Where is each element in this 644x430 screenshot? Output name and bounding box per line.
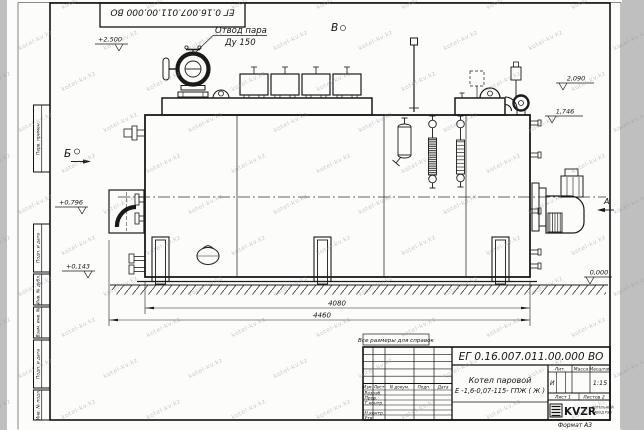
level-0000-label: 0,000 xyxy=(590,269,609,277)
level-1746-label: 1,746 xyxy=(556,108,575,116)
level-2090-label: 2,090 xyxy=(567,75,586,83)
manhole xyxy=(197,246,219,265)
format-label: Формат А3 xyxy=(558,422,592,429)
company-logo: KVZR КОТЕЛЬНЫЙ ЗАВОД РЭП xyxy=(550,404,614,418)
steam-dome xyxy=(455,62,529,115)
tb-col-data: Дата xyxy=(437,385,449,390)
level-gauge-1 xyxy=(429,116,437,188)
tb-row-tkontr: Т.контр. xyxy=(365,400,384,406)
stub-pipe xyxy=(409,38,419,112)
steam-outlet-label-1: Отвод пара xyxy=(215,26,267,36)
tb-row-utv: Утв. xyxy=(365,415,374,421)
margin-label: Подп. и дата xyxy=(36,233,42,263)
dim-4080-label: 4080 xyxy=(328,300,346,308)
view-a-label: А xyxy=(603,197,609,206)
burner xyxy=(532,169,584,233)
dim-4460-label: 4460 xyxy=(313,312,331,320)
drawing-canvas: ЕГ 0.16.007.011.00.000 ВО Перв. примен. … xyxy=(0,0,644,430)
title-block: ЕГ 0.16.007.011.00.000 ВО Котел паровой … xyxy=(363,347,614,421)
drawing-sheet: ЕГ 0.16.007.011.00.000 ВО Перв. примен. … xyxy=(0,0,644,430)
tb-lit-value: И xyxy=(550,380,555,387)
dome-lug xyxy=(213,90,229,98)
tb-col-list: Лист xyxy=(373,385,385,390)
view-v-label: В xyxy=(331,22,338,34)
note-text: Все размеры для справок xyxy=(358,338,435,344)
level-2500-label: +2,500 xyxy=(98,36,122,44)
margin-stamp-labels: Перв. примен. Подп. и дата Инв. № дубл. … xyxy=(36,122,42,420)
margin-label: Подп. и дата xyxy=(36,349,42,379)
corner-doc-number: ЕГ 0.16.007.011.00.000 ВО xyxy=(110,7,234,17)
steam-valve xyxy=(163,46,209,97)
front-vessel xyxy=(393,118,412,166)
tb-col-ndokum: N докум. xyxy=(390,385,409,390)
company-name-2: ЗАВОД РЭП xyxy=(592,411,612,415)
top-platform xyxy=(162,98,372,115)
level-0143-label: +0,143 xyxy=(66,263,90,271)
margin-label: Инв. № подл. xyxy=(36,390,42,420)
level-0796-label: +0,796 xyxy=(59,199,83,207)
tb-col-podp: Подп. xyxy=(418,385,431,390)
margin-label: Взам. инв. № xyxy=(36,307,42,337)
margin-label: Перв. примен. xyxy=(36,122,42,155)
steam-outlet-callout: Отвод пара Ду 150 xyxy=(196,26,267,52)
tb-scale-header: Масштаб xyxy=(589,367,611,373)
tb-lit-header: Лит. xyxy=(554,367,566,373)
tb-mass-header: Масса xyxy=(574,367,589,373)
company-name-1: КОТЕЛЬНЫЙ xyxy=(592,405,614,410)
steam-outlet-label-2: Ду 150 xyxy=(224,38,256,48)
tb-sheets-info: Листов 2 xyxy=(582,395,605,401)
view-b-label: Б xyxy=(64,148,71,160)
note-box: Все размеры для справок xyxy=(358,334,435,345)
safety-boxes xyxy=(240,67,361,98)
ground xyxy=(110,285,608,295)
tb-sheet-info: Лист 1 xyxy=(554,395,571,401)
margin-label: Инв. № дубл. xyxy=(36,274,42,304)
tb-product-name: Котел паровой xyxy=(469,376,532,385)
left-fittings xyxy=(124,126,145,274)
tb-product-type: Е -1,6-0,07-115- ГПЖ ( Ж ) xyxy=(455,387,545,395)
tb-doc-number: ЕГ 0.16.007.011.00.000 ВО xyxy=(459,351,604,363)
boiler-shell xyxy=(145,115,530,277)
level-gauge-2 xyxy=(457,116,465,187)
boiler-view xyxy=(109,38,608,326)
corner-stamp: ЕГ 0.16.007.011.00.000 ВО xyxy=(100,3,245,27)
tb-col-izm: Изм. xyxy=(363,385,373,390)
tb-scale-value: 1:15 xyxy=(593,379,608,387)
